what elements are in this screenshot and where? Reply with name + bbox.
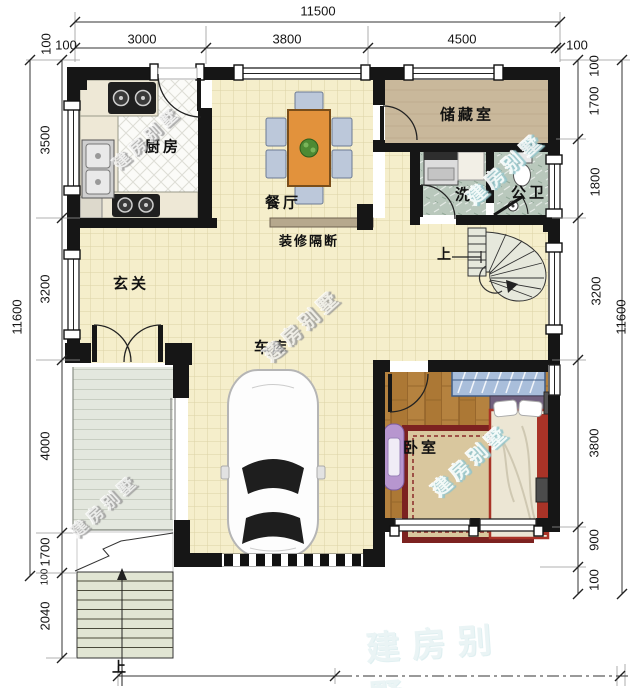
window-post <box>64 330 80 339</box>
dim-top-overall: 11500 <box>300 4 335 19</box>
dim-top-seg-100r: 100 <box>566 38 588 53</box>
chair <box>332 118 352 146</box>
dim-right-seg-3200: 3200 <box>589 277 604 306</box>
window-post <box>546 155 562 164</box>
dim-right-seg-1700: 1700 <box>587 87 602 116</box>
dim-left-seg-2040: 2040 <box>38 602 53 631</box>
dim-top-seg-100l: 100 <box>55 38 77 53</box>
label-partition: 装修隔断 <box>279 231 339 250</box>
door-opening <box>158 68 197 79</box>
wall <box>363 549 385 567</box>
dim-left-seg-3500: 3500 <box>38 126 53 155</box>
window-post <box>404 65 413 80</box>
wall <box>198 108 212 218</box>
window-post <box>64 186 80 195</box>
door-leaf <box>92 325 97 362</box>
door-leaf <box>388 374 392 412</box>
wall <box>67 218 217 228</box>
wall <box>173 365 189 398</box>
window-post <box>469 526 478 536</box>
garage-door <box>222 554 363 566</box>
corridor-floor <box>385 152 410 228</box>
bed <box>490 396 548 538</box>
dim-left-overall: 11600 <box>10 299 25 334</box>
window-post <box>546 209 562 218</box>
exterior-stairs-up-label: 上 <box>112 657 126 677</box>
mirror <box>221 466 229 479</box>
wall <box>428 360 548 372</box>
dim-top-seg-3800: 3800 <box>273 32 302 47</box>
room-label-bathroom: 公卫 <box>511 182 547 203</box>
pillow <box>518 400 542 417</box>
wall <box>357 204 373 230</box>
wall <box>410 152 420 225</box>
stairs-up-label: 上 <box>437 244 451 264</box>
chair <box>295 92 323 110</box>
window <box>395 519 470 531</box>
window-post <box>150 64 158 80</box>
wall <box>548 80 560 160</box>
wall <box>456 215 548 225</box>
window <box>408 68 498 79</box>
window <box>549 365 560 395</box>
dim-right-seg-1800: 1800 <box>588 168 603 197</box>
room-label-dining: 餐厅 <box>265 192 301 213</box>
dim-left-seg-3200: 3200 <box>38 275 53 304</box>
door-leaf <box>197 78 201 111</box>
window-post <box>361 65 370 80</box>
dim-right-seg-900: 900 <box>587 529 602 551</box>
watermark: 建房别墅 <box>364 609 552 688</box>
door-leaf <box>158 325 163 362</box>
wall <box>365 67 408 80</box>
window-post <box>546 243 562 252</box>
dim-left-seg-100b: 100 <box>40 569 51 586</box>
window-post <box>546 325 562 334</box>
wall <box>548 395 560 518</box>
wall <box>174 520 190 567</box>
dim-right-seg-100b: 100 <box>587 569 602 591</box>
window <box>549 160 560 212</box>
room-label-foyer: 玄关 <box>113 273 149 294</box>
door-leaf <box>380 106 384 140</box>
wall <box>410 215 420 225</box>
side-table <box>536 478 548 502</box>
chair <box>266 118 286 146</box>
window-post <box>534 526 543 536</box>
window-post <box>64 250 80 259</box>
dim-right-seg-3800: 3800 <box>587 429 602 458</box>
car <box>221 370 325 556</box>
pillow <box>493 400 517 417</box>
door-opening <box>390 361 428 371</box>
dim-right-seg-100t: 100 <box>587 55 602 77</box>
window <box>68 107 79 190</box>
door-leaf <box>419 185 423 217</box>
wall <box>373 372 385 532</box>
chair <box>266 150 286 178</box>
sink <box>82 140 114 198</box>
blanket <box>537 414 548 535</box>
dim-right-overall: 11600 <box>614 299 629 334</box>
landing <box>77 532 173 572</box>
window <box>239 68 365 79</box>
window-post <box>234 65 243 80</box>
wall <box>190 553 222 567</box>
chair <box>332 150 352 178</box>
window <box>480 519 536 531</box>
room-label-bedroom: 卧室 <box>403 437 439 458</box>
armchair <box>384 424 404 490</box>
dim-top-seg-4500: 4500 <box>448 32 477 47</box>
stove-bottom <box>112 194 160 217</box>
wall <box>373 532 385 549</box>
stove-top <box>108 82 156 114</box>
room-label-storage: 储藏室 <box>440 104 494 125</box>
window <box>549 248 560 328</box>
window-post <box>64 101 80 110</box>
dim-left-seg-4000: 4000 <box>38 432 53 461</box>
wall <box>373 67 385 105</box>
plant <box>300 139 318 157</box>
mirror <box>317 466 325 479</box>
dim-left-seg-100t: 100 <box>39 33 54 55</box>
wall <box>165 343 192 365</box>
wall <box>498 67 560 80</box>
window <box>68 255 79 333</box>
wall <box>373 360 390 372</box>
cabinet <box>80 197 102 218</box>
floor-plan: 11500 100 3000 3800 4500 100 100 3500 32… <box>0 0 640 688</box>
dim-top-seg-3000: 3000 <box>128 32 157 47</box>
window-post <box>494 65 503 80</box>
window-post <box>390 526 399 536</box>
floor-plan-drawing <box>0 0 640 688</box>
dim-left-seg-1700: 1700 <box>38 538 53 567</box>
door-opening <box>420 216 456 224</box>
stair-body <box>77 572 173 658</box>
